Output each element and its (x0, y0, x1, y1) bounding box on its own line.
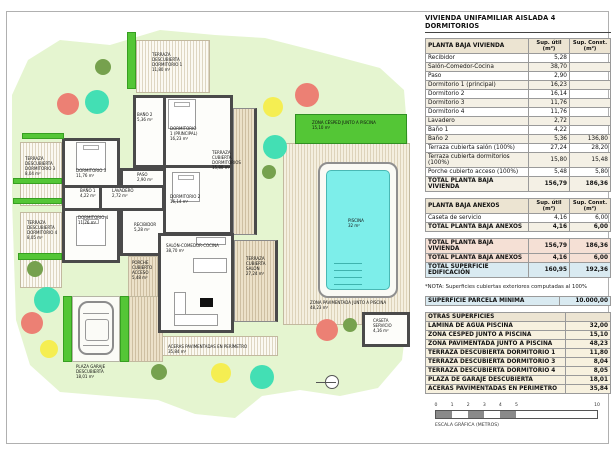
tree-icon (343, 318, 357, 332)
label-terraza-cubierta-salon: TERRAZA CUBIERTA SALÓN 27,24 m² (246, 256, 266, 276)
table-row: TOTAL PLANTA BAJA ANEXOS4,166,00 (426, 223, 611, 232)
label-bano-1: BAÑO 1 4,22 m² (80, 188, 96, 198)
room-bano-2 (133, 95, 166, 168)
table-header: OTRAS SUPERFICIES (426, 313, 566, 322)
table-row: Paso2,90 (426, 72, 611, 81)
car-icon (78, 301, 114, 355)
table-row: TERRAZA DESCUBIERTA DORMITORIO 111,80 (426, 349, 611, 358)
tree-icon (262, 165, 276, 179)
table-row: Lavadero2,72 (426, 117, 611, 126)
bed (168, 99, 196, 129)
table-row: LÁMINA DE AGUA PISCINA32,00 (426, 322, 611, 331)
table-header: PLANTA BAJA ANEXOS (426, 199, 529, 214)
col-sup-util: Sup. útil (m²) (529, 39, 570, 54)
label-cesped: ZONA CÉSPED JUNTO A PISCINA 15,10 m² (312, 120, 376, 130)
tree-icon (211, 363, 231, 383)
scale-tick: 0 (435, 403, 438, 408)
scale-tick: 1 (451, 403, 454, 408)
scale-segment (468, 411, 484, 418)
tree-icon (34, 287, 60, 313)
tree-icon (95, 59, 111, 75)
table-row: Baño 14,22 (426, 126, 611, 135)
table-header: PLANTA BAJA VIVIENDA (426, 39, 529, 54)
footnote: *NOTA: Superficies cubiertas exteriores … (425, 284, 611, 290)
hedge (120, 296, 129, 362)
table-row: Dormitorio 411,76 (426, 108, 611, 117)
table-row: Caseta de servicio4,166,00 (426, 214, 611, 223)
hedge (22, 133, 64, 139)
table-row: Dormitorio 311,76 (426, 99, 611, 108)
tree-icon (151, 364, 167, 380)
col-sup-const: Sup. Const. (m²) (570, 39, 611, 54)
label-paso: PASO 2,90 m² (137, 172, 153, 182)
pool-steps (334, 284, 362, 285)
site-plan: TERRAZA DESCUBIERTA DORMITORIO 1 11,80 m… (0, 0, 420, 454)
table-row: Terraza cubierta salón (100%)27,2428,20 (426, 144, 611, 153)
table-header-value (566, 313, 611, 322)
table-row: TOTAL PLANTA BAJA ANEXOS4,166,00 (426, 254, 611, 263)
label-dormitorio-3: DORMITORIO 3 11,76 m² (76, 168, 106, 178)
scale-tick: 2 (467, 403, 470, 408)
label-dormitorio-1: DORMITORIO 1 (PRINCIPAL) 16,23 m² (170, 126, 197, 141)
tree-icon (263, 97, 283, 117)
label-dormitorio-2: DORMITORIO 2 16,14 m² (170, 194, 200, 204)
tree-icon (250, 365, 274, 389)
table-row: TERRAZA DESCUBIERTA DORMITORIO 38,04 (426, 358, 611, 367)
label-piscina: PISCINA 32 m² (348, 218, 364, 228)
scale-tick: 10 (594, 403, 600, 408)
tree-icon (57, 93, 79, 115)
scale-tick: 3 (483, 403, 486, 408)
otras-superficies-table: OTRAS SUPERFICIES LÁMINA DE AGUA PISCINA… (425, 312, 611, 394)
pool (318, 162, 398, 298)
table-row: Dormitorio 216,14 (426, 90, 611, 99)
parcela-minima-table: SUPERFICIE PARCELA MÍNIMA10.000,00 (425, 296, 611, 306)
table-row: ZONA PAVIMENTADA JUNTO A PISCINA48,23 (426, 340, 611, 349)
label-garaje: PLAZA GARAJE DESCUBIERTA 18,01 m² (76, 364, 105, 379)
pool-steps (334, 263, 362, 264)
tree-icon (27, 261, 43, 277)
tv-icon (200, 298, 213, 307)
hedge (63, 296, 72, 362)
scale-tick: 5 (515, 403, 518, 408)
table-row: Dormitorio 1 (principal)16,23 (426, 81, 611, 90)
pool-steps (334, 277, 362, 278)
hedge (13, 178, 62, 184)
label-lavadero: LAVADERO 2,72 m² (112, 188, 134, 198)
tree-icon (40, 340, 58, 358)
planta-baja-vivienda-table: PLANTA BAJA VIVIENDA Sup. útil (m²) Sup.… (425, 38, 611, 192)
hedge (13, 198, 62, 204)
label-pavimentada: ZONA PAVIMENTADA JUNTO A PISCINA 48,23 m… (310, 300, 386, 310)
scale-segment (436, 411, 452, 418)
sofa (174, 314, 218, 326)
label-aceras: ACERAS PAVIMENTADAS EN PERÍMETRO 35,84 m… (168, 344, 247, 354)
label-bano-2: BAÑO 2 5,36 m² (137, 112, 153, 122)
terraza-cubierta-salon (234, 240, 278, 322)
col-sup-const: Sup. Const. (m²) (570, 199, 611, 214)
table-row: ACERAS PAVIMENTADAS EN PERÍMETRO35,84 (426, 385, 611, 394)
scale-segment (500, 411, 516, 418)
totales-table: TOTAL PLANTA BAJA VIVIENDA156,79186,36TO… (425, 238, 611, 278)
tree-icon (295, 83, 319, 107)
planta-baja-anexos-table: PLANTA BAJA ANEXOS Sup. útil (m²) Sup. C… (425, 198, 611, 232)
table-row: Baño 25,36136,80 (426, 135, 611, 144)
scale-label: ESCALA GRÁFICA (METROS) (435, 423, 611, 428)
scale-tick: 4 (499, 403, 502, 408)
table-row: SUPERFICIE PARCELA MÍNIMA10.000,00 (426, 297, 611, 306)
label-caseta: CASETA SERVICIO 4,16 m² (373, 318, 392, 333)
hedge (127, 32, 136, 89)
pool-water (326, 170, 390, 290)
scale-bar: 01234510 (435, 410, 598, 419)
table-row: PLAZA DE GARAJE DESCUBIERTA18,01 (426, 376, 611, 385)
table-row: Porche cubierto acceso (100%)5,485,80 (426, 168, 611, 177)
label-porche: PORCHE CUBIERTO ACCESO 5,48 m² (132, 260, 152, 280)
table-row: Recibidor5,28 (426, 54, 611, 63)
table-row: TOTAL SUPERFICIE EDIFICACIÓN160,95192,36 (426, 263, 611, 278)
label-terraza-dorm4: TERRAZA DESCUBIERTA DORMITORIO 4 8,05 m² (27, 220, 57, 240)
table-row: TOTAL PLANTA BAJA VIVIENDA156,79186,36 (426, 239, 611, 254)
label-salon: SALÓN-COMEDOR-COCINA 38,70 m² (166, 243, 219, 253)
tree-icon (21, 312, 43, 334)
table-row: TERRAZA DESCUBIERTA DORMITORIO 48,05 (426, 367, 611, 376)
pool-steps (334, 270, 362, 271)
hedge (18, 253, 62, 260)
area-panel: VIVIENDA UNIFAMILIAR AISLADA 4 DORMITORI… (425, 14, 611, 428)
table-row: Terraza cubierta dormitorios (100%)15,80… (426, 153, 611, 168)
tree-icon (316, 319, 338, 341)
label-terraza-cubierta-dormitorios: TERRAZA CUBIERTA DORMITORIOS 15,80 m² (212, 150, 241, 170)
tree-icon (263, 135, 287, 159)
label-recibidor: RECIBIDOR 5,28 m² (134, 222, 156, 232)
terraza-cubierta-dormitorios (233, 108, 257, 235)
label-dormitorio-4: DORMITORIO 4 11,76 m² (78, 215, 108, 225)
page-title: VIVIENDA UNIFAMILIAR AISLADA 4 DORMITORI… (425, 14, 611, 33)
plan-sheet: TERRAZA DESCUBIERTA DORMITORIO 1 11,80 m… (0, 0, 615, 454)
table-row: Salón-Comedor-Cocina38,70 (426, 63, 611, 72)
table-row: ZONA CÉSPED JUNTO A PISCINA15,10 (426, 331, 611, 340)
table-row: TOTAL PLANTA BAJA VIVIENDA156,79186,36 (426, 177, 611, 192)
col-sup-util: Sup. útil (m²) (529, 199, 570, 214)
tree-icon (85, 90, 109, 114)
label-terraza-dorm3: TERRAZA DESCUBIERTA DORMITORIO 3 8,04 m² (25, 156, 55, 176)
bed (76, 142, 106, 170)
dining-table (193, 258, 227, 273)
label-terraza-dorm1: TERRAZA DESCUBIERTA DORMITORIO 1 11,80 m… (152, 52, 182, 72)
survey-marker-icon (316, 382, 336, 383)
